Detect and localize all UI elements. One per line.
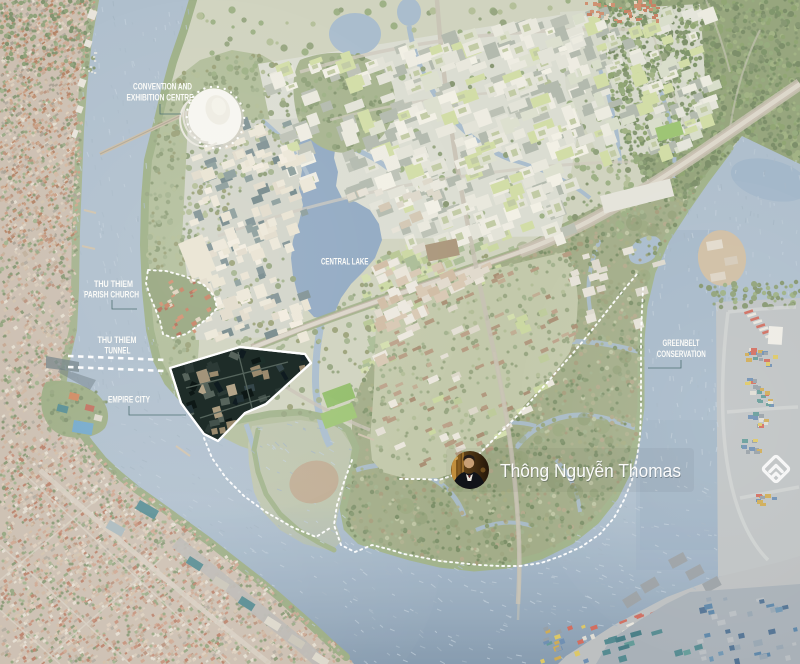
svg-text:CENTRAL LAKE: CENTRAL LAKE — [321, 257, 369, 267]
svg-text:EXHIBITION CENTRE: EXHIBITION CENTRE — [127, 93, 194, 103]
svg-text:THU THIEM: THU THIEM — [98, 335, 137, 345]
svg-text:Thông Nguyễn Thomas: Thông Nguyễn Thomas — [500, 460, 681, 481]
svg-text:CONVENTION AND: CONVENTION AND — [133, 82, 192, 92]
svg-text:CONSERVATION: CONSERVATION — [657, 349, 706, 359]
svg-text:EMPIRE CITY: EMPIRE CITY — [108, 395, 150, 405]
svg-text:GREENBELT: GREENBELT — [663, 338, 700, 348]
svg-text:TUNNEL: TUNNEL — [105, 346, 131, 356]
svg-text:THU THIEM: THU THIEM — [94, 279, 133, 289]
svg-text:PARISH CHURCH: PARISH CHURCH — [84, 290, 139, 300]
